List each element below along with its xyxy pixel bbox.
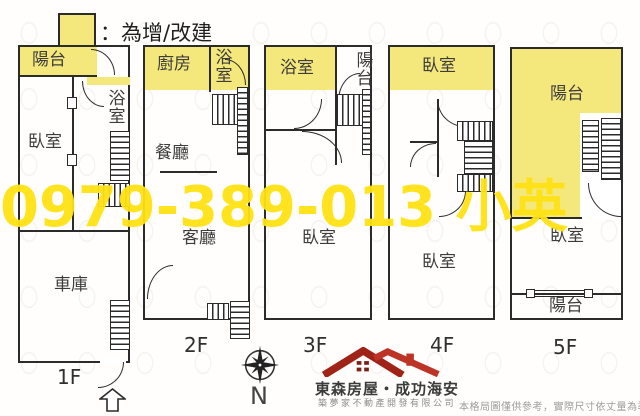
room-label-bedroom: 臥室 xyxy=(28,133,62,153)
room-label-garage: 車庫 xyxy=(54,276,88,296)
stairs xyxy=(457,121,493,141)
stairs xyxy=(237,87,248,155)
floor-label-1f: 1F xyxy=(57,365,81,389)
brand-house-icon xyxy=(317,347,447,377)
stairs xyxy=(110,300,130,350)
compass-n-label: N xyxy=(250,382,268,410)
stairs xyxy=(230,301,250,339)
room-label-bedroom-top: 臥室 xyxy=(422,57,456,77)
stairs xyxy=(362,89,371,155)
watermark-phone: 0979-389-013 小英 xyxy=(0,162,640,243)
legend-highlight-swatch xyxy=(58,13,96,47)
room-label-balcony-top: 陽台 xyxy=(550,85,584,105)
window-icon xyxy=(584,289,593,298)
door-arc xyxy=(147,265,173,299)
disclaimer-text: 本格局圖僅供參考，實際尺寸依丈量為準 xyxy=(459,398,640,413)
floor-label-2f: 2F xyxy=(184,333,208,357)
window-icon xyxy=(67,97,77,109)
room-label-bath: 浴室 xyxy=(211,48,231,84)
wall-segment xyxy=(266,129,335,131)
room-label-bedroom-bottom: 臥室 xyxy=(422,253,456,273)
door-arc xyxy=(294,99,322,129)
stairs xyxy=(337,94,364,126)
room-label-dining: 餐廳 xyxy=(155,144,189,164)
entrance-arrow-icon xyxy=(99,388,126,412)
wall-segment xyxy=(20,75,97,77)
floor-label-5f: 5F xyxy=(553,335,577,359)
legend-label: ：為增/改建 xyxy=(100,17,212,47)
room-label-balcony: 陽台 xyxy=(32,51,66,71)
stairs xyxy=(207,303,229,320)
door-arc xyxy=(91,49,115,75)
room-label-bath: 浴室 xyxy=(104,89,124,125)
room-label-balcony-bottom: 陽台 xyxy=(549,297,583,317)
door-arc xyxy=(82,81,104,107)
room-label-balcony: 陽台 xyxy=(352,51,372,87)
company-name: 築夢家不動產開發有限公司 xyxy=(318,396,456,409)
entrance-door-arc xyxy=(98,362,124,388)
room-label-kitchen: 廚房 xyxy=(157,55,191,75)
floorplan-canvas: ：為增/改建 陽台 浴室 臥室 車庫 廚房 浴室 餐廳 xyxy=(0,0,640,416)
room-label-bath: 浴室 xyxy=(280,59,314,79)
window-icon xyxy=(526,289,535,298)
